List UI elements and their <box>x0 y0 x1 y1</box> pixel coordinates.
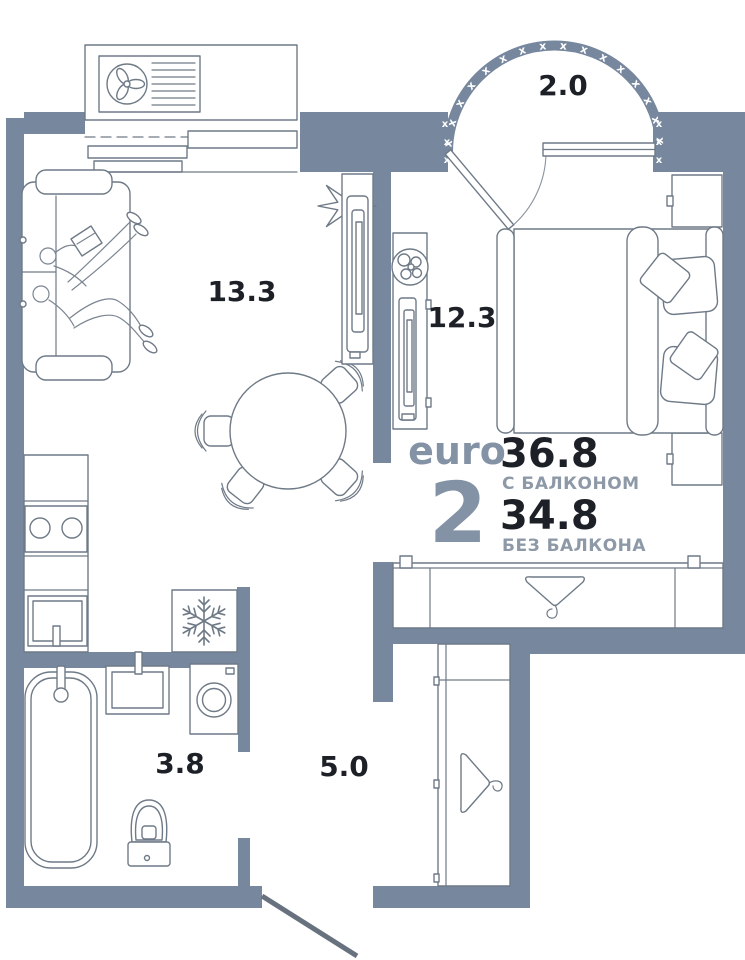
kitchen-counter <box>24 455 88 652</box>
area-with-balcony-label: С БАЛКОНОМ <box>502 474 640 494</box>
fan-icon <box>107 64 147 104</box>
dining-chair <box>195 411 234 451</box>
room-label-hallway: 5.0 <box>319 750 369 783</box>
bedroom-window <box>543 143 655 156</box>
dining-table <box>230 373 346 489</box>
bathtub <box>25 666 97 868</box>
nightstand-top <box>667 175 722 227</box>
plan-summary: euro 2 36.8 С БАЛКОНОМ 34.8 БЕЗ БАЛКОНА <box>408 429 646 562</box>
nightstand-bottom <box>667 433 722 485</box>
fridge <box>172 590 237 652</box>
rooms-count: 2 <box>429 464 487 562</box>
balcony-hatch-mark: x <box>656 119 663 130</box>
burner <box>62 518 82 538</box>
balcony-hatch-mark: x <box>656 137 663 148</box>
balcony-hatch-mark: x <box>442 119 449 130</box>
plant-bedroom <box>392 249 428 285</box>
area-without-balcony-label: БЕЗ БАЛКОНА <box>502 536 646 556</box>
balcony-hatch-mark: x <box>444 137 451 148</box>
washing-machine <box>190 664 238 734</box>
entrance-door <box>262 896 357 956</box>
door-swing-arc <box>511 152 546 227</box>
stove <box>25 506 87 552</box>
toilet <box>128 800 170 866</box>
burner <box>30 518 50 538</box>
bed-blanket <box>627 227 658 435</box>
balcony-hatch-mark: x <box>656 155 663 166</box>
room-label-bedroom: 12.3 <box>427 301 496 334</box>
ac-ledge <box>85 45 297 120</box>
living-window <box>85 131 297 172</box>
kitchen-sink <box>28 596 87 646</box>
wardrobe-horizontal <box>393 556 723 628</box>
room-label-living: 13.3 <box>207 275 276 308</box>
dining-set <box>195 354 370 517</box>
balcony-door <box>445 150 546 229</box>
area-without-balcony: 34.8 <box>500 493 599 539</box>
floor-plan: x x x x x x x x x x x x x x x x x x x x … <box>0 0 745 960</box>
wardrobe-vertical <box>434 644 510 886</box>
room-label-bathroom: 3.8 <box>155 747 205 780</box>
door-leaf <box>445 150 513 229</box>
tv-stand-living <box>342 174 373 364</box>
bed-footboard <box>497 229 514 433</box>
room-label-balcony: 2.0 <box>538 69 588 102</box>
bed <box>497 227 723 435</box>
area-with-balcony: 36.8 <box>500 431 599 477</box>
